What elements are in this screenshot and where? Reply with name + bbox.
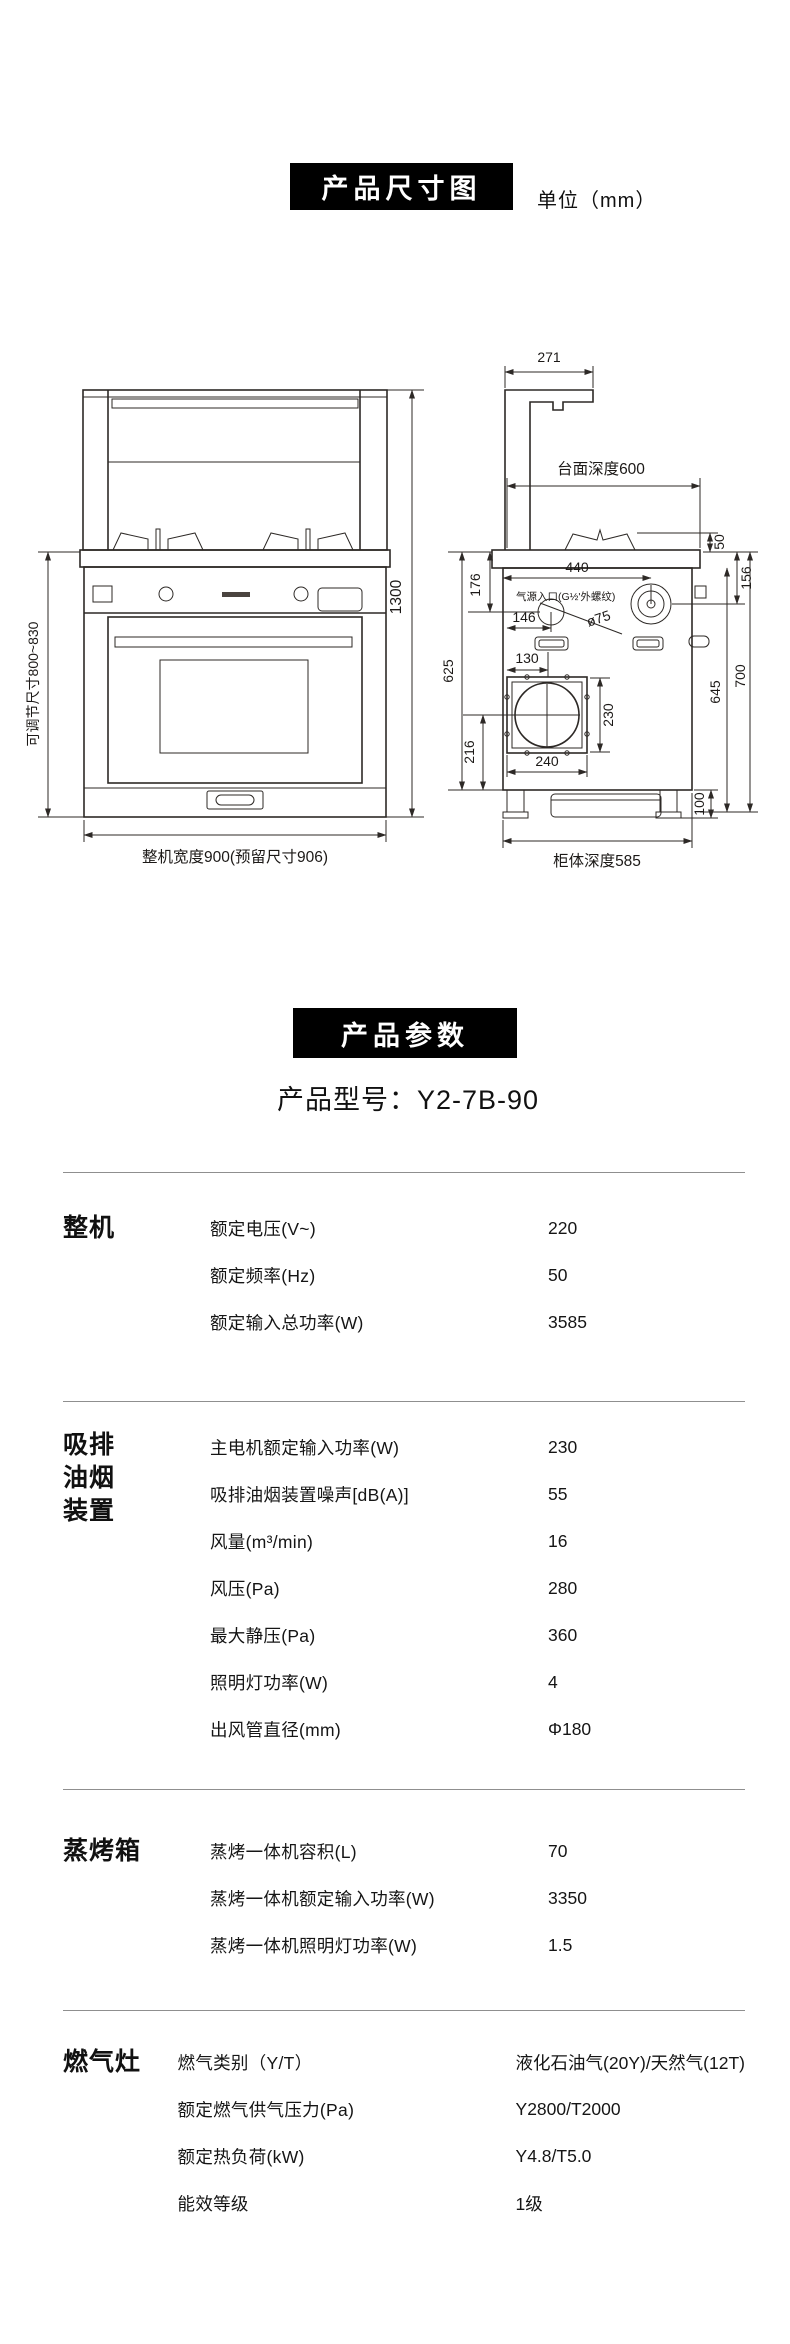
spec-label: 风量(m³/min) — [210, 1529, 548, 1554]
dim-cabinet-height: 645 — [700, 568, 737, 812]
spec-value: 液化石油气(20Y)/天然气(12T) — [516, 2050, 745, 2075]
spec-row: 额定热负荷(kW) Y4.8/T5.0 — [178, 2133, 745, 2180]
dim-counter-depth-label: 台面深度600 — [557, 460, 645, 478]
dim-burner-height-label: 50 — [711, 534, 727, 550]
spec-label: 额定热负荷(kW) — [178, 2144, 516, 2169]
spec-row: 额定燃气供气压力(Pa) Y2800/T2000 — [178, 2086, 745, 2133]
spec-row: 能效等级 1级 — [178, 2180, 745, 2227]
spec-label: 蒸烤一体机照明灯功率(W) — [210, 1933, 548, 1958]
dim-outlet-height: 230 — [590, 678, 616, 752]
dim-outlet-offset-label: 130 — [515, 650, 539, 666]
oven-window — [160, 660, 308, 753]
dim-adjustable-height-label: 可调节尺寸800~830 — [25, 621, 41, 746]
control-panel — [93, 586, 362, 611]
product-detail-page: 产品尺寸图 单位（mm） — [0, 0, 790, 2344]
dim-cabinet-depth-label: 柜体深度585 — [553, 852, 641, 870]
spec-row: 风量(m³/min) 16 — [210, 1518, 745, 1565]
spec-label: 额定频率(Hz) — [210, 1263, 548, 1288]
spec-value: 1.5 — [548, 1935, 572, 1956]
dim-burner-height: 50 — [637, 533, 727, 552]
dim-inlet-offset: 146 — [507, 609, 551, 632]
spec-value: 360 — [548, 1625, 577, 1646]
brand-mark — [222, 592, 250, 597]
spec-value: 50 — [548, 1265, 567, 1286]
spec-label: 燃气类别（Y/T） — [178, 2050, 516, 2075]
spec-row: 蒸烤一体机容积(L) 70 — [210, 1828, 745, 1875]
spec-label: 蒸烤一体机容积(L) — [210, 1839, 548, 1864]
dim-adjustable-height: 可调节尺寸800~830 — [25, 552, 84, 817]
dim-knob-drop: 156 — [672, 552, 754, 604]
wall-bracket — [695, 586, 706, 598]
exhaust-outlet — [505, 675, 589, 755]
section-name: 整机 — [63, 1205, 210, 1346]
spec-row: 最大静压(Pa) 360 — [210, 1612, 745, 1659]
spec-value: Y4.8/T5.0 — [516, 2146, 592, 2167]
dim-counter-to-base-label: 625 — [440, 659, 456, 683]
spec-row: 蒸烤一体机额定输入功率(W) 3350 — [210, 1875, 745, 1922]
fan-housing — [551, 794, 661, 817]
dim-foot-height-label: 100 — [691, 792, 707, 816]
lamp-strip — [112, 399, 358, 408]
dim-foot-height: 100 — [681, 790, 718, 818]
spec-label: 吸排油烟装置噪声[dB(A)] — [210, 1482, 548, 1507]
spec-label: 出风管直径(mm) — [210, 1717, 548, 1742]
display-panel — [318, 588, 362, 611]
dim-outlet-to-base-label: 216 — [461, 740, 477, 764]
dim-duct-depth-label: 271 — [537, 349, 561, 365]
parameters-title: 产品参数 — [293, 1008, 517, 1058]
spec-label: 风压(Pa) — [210, 1576, 548, 1601]
spec-value: 16 — [548, 1531, 567, 1552]
spec-row: 额定电压(V~) 220 — [210, 1205, 745, 1252]
spec-value: Φ180 — [548, 1719, 591, 1740]
dim-cabinet-depth: 柜体深度585 — [503, 793, 692, 870]
dim-total-width-label: 整机宽度900(预留尺寸906) — [142, 848, 328, 866]
base-feet — [503, 790, 681, 818]
spec-row: 风压(Pa) 280 — [210, 1565, 745, 1612]
dim-outlet-width: 240 — [507, 753, 587, 777]
spec-row: 照明灯功率(W) 4 — [210, 1659, 745, 1706]
dim-inlet-diameter-label: ø75 — [585, 607, 613, 630]
spec-row: 主电机额定输入功率(W) 230 — [210, 1424, 745, 1471]
spec-value: 4 — [548, 1672, 558, 1693]
spec-value: 280 — [548, 1578, 577, 1599]
spec-section-whole-machine: 整机 额定电压(V~) 220 额定频率(Hz) 50 额定输入总功率(W) 3… — [63, 1172, 745, 1401]
spec-label: 主电机额定输入功率(W) — [210, 1435, 548, 1460]
spec-label: 额定输入总功率(W) — [210, 1310, 548, 1335]
section-name-line: 装置 — [63, 1495, 210, 1528]
spec-label: 最大静压(Pa) — [210, 1623, 548, 1648]
dim-outlet-width-label: 240 — [535, 753, 559, 769]
dim-cabinet-height-label: 645 — [707, 680, 723, 704]
vent-slots — [535, 637, 663, 650]
dimension-diagram: 可调节尺寸800~830 1300 整机宽度900(预留尺寸906) — [0, 0, 790, 880]
section-name: 吸排 油烟 装置 — [63, 1424, 210, 1753]
spec-row: 出风管直径(mm) Φ180 — [210, 1706, 745, 1753]
bottom-drawer — [84, 788, 386, 809]
dim-total-width: 整机宽度900(预留尺寸906) — [84, 820, 386, 866]
spec-value: 3585 — [548, 1312, 587, 1333]
spec-value: Y2800/T2000 — [516, 2099, 621, 2120]
dim-inlet-offset-label: 146 — [512, 609, 536, 625]
switch-icon — [93, 586, 112, 602]
spec-row: 蒸烤一体机照明灯功率(W) 1.5 — [210, 1922, 745, 1969]
dim-inlet-drop-label: 176 — [467, 573, 483, 597]
gas-inlet-label: 气源入口(G½'外螺纹) — [516, 590, 615, 603]
spec-label: 额定燃气供气压力(Pa) — [178, 2097, 516, 2122]
dim-duct-depth: 271 — [505, 349, 593, 388]
dim-knob-drop-label: 156 — [738, 566, 754, 590]
dim-knob-offset-label: 440 — [565, 559, 589, 575]
oven-handle — [115, 637, 352, 647]
side-view: 271 台面深度600 50 — [440, 349, 758, 870]
spec-row: 额定输入总功率(W) 3585 — [210, 1299, 745, 1346]
burner-left-icon — [113, 529, 203, 550]
section-name-line: 油烟 — [63, 1462, 210, 1495]
section-name: 蒸烤箱 — [63, 1828, 210, 1969]
dim-total-height-label: 1300 — [388, 579, 405, 614]
dim-overall-drop-label: 700 — [732, 664, 748, 688]
knob-left-icon — [159, 587, 173, 601]
spec-label: 照明灯功率(W) — [210, 1670, 548, 1695]
spec-label: 能效等级 — [178, 2191, 516, 2216]
dim-counter-depth: 台面深度600 — [507, 460, 700, 548]
spec-value: 55 — [548, 1484, 567, 1505]
section-name-line: 吸排 — [63, 1429, 210, 1462]
spec-row: 额定频率(Hz) 50 — [210, 1252, 745, 1299]
spec-section-steam-oven: 蒸烤箱 蒸烤一体机容积(L) 70 蒸烤一体机额定输入功率(W) 3350 蒸烤… — [63, 1789, 745, 2010]
product-model: 产品型号：Y2-7B-90 — [277, 1078, 539, 1117]
spec-label: 额定电压(V~) — [210, 1216, 548, 1241]
spec-section-gas-stove: 燃气灶 燃气类别（Y/T） 液化石油气(20Y)/天然气(12T) 额定燃气供气… — [63, 2010, 745, 2227]
spec-row: 吸排油烟装置噪声[dB(A)] 55 — [210, 1471, 745, 1518]
spec-value: 220 — [548, 1218, 577, 1239]
spec-value: 230 — [548, 1437, 577, 1458]
spec-value: 70 — [548, 1841, 567, 1862]
dim-outlet-height-label: 230 — [600, 703, 616, 727]
dim-outlet-offset: 130 — [507, 650, 548, 677]
spec-value: 3350 — [548, 1888, 587, 1909]
section-name: 燃气灶 — [63, 2039, 178, 2227]
oven-door — [108, 617, 362, 783]
spec-label: 蒸烤一体机额定输入功率(W) — [210, 1886, 548, 1911]
spec-row: 燃气类别（Y/T） 液化石油气(20Y)/天然气(12T) — [178, 2039, 745, 2086]
front-view: 可调节尺寸800~830 1300 整机宽度900(预留尺寸906) — [25, 390, 424, 866]
knob-right-icon — [294, 587, 308, 601]
spec-section-hood: 吸排 油烟 装置 主电机额定输入功率(W) 230 吸排油烟装置噪声[dB(A)… — [63, 1401, 745, 1789]
spec-table: 整机 额定电压(V~) 220 额定频率(Hz) 50 额定输入总功率(W) 3… — [63, 1172, 745, 2227]
burner-right-icon — [263, 529, 353, 550]
dim-total-height: 1300 — [386, 390, 424, 817]
burner-profile-icon — [565, 530, 635, 550]
spec-value: 1级 — [516, 2191, 543, 2216]
